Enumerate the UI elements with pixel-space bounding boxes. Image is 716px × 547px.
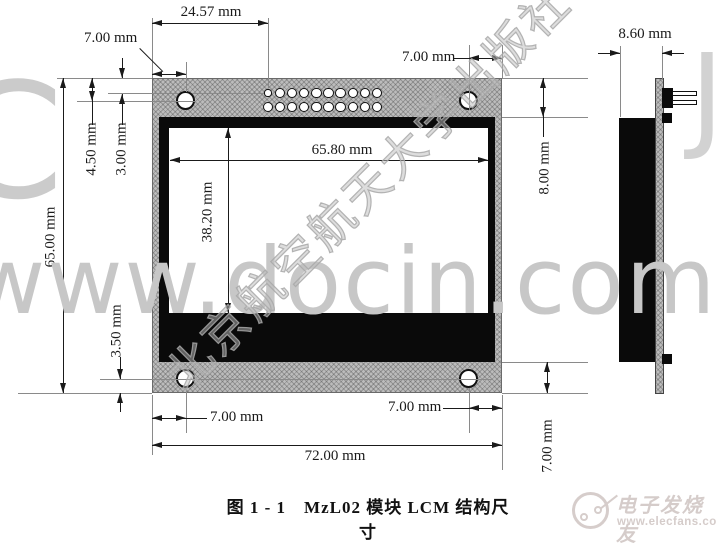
pin-hole: [360, 88, 370, 98]
extension-line: [502, 117, 588, 118]
elecfans-logo-pad: [580, 513, 588, 521]
dim-label-module-width: 72.00 mm: [285, 448, 385, 465]
arrowhead: [152, 71, 162, 77]
dim-label-hole-inset-bottom-right: 7.00 mm: [388, 399, 441, 416]
arrowhead: [225, 303, 231, 313]
extension-line: [502, 393, 588, 394]
dim-label-hole-to-bottom: 3.50 mm: [109, 304, 126, 357]
arrowhead: [225, 128, 231, 138]
arrowhead: [170, 157, 180, 163]
solder-tab-top: [662, 113, 672, 123]
pin-hole: [335, 102, 345, 112]
dim-label-top-margin: 8.00 mm: [537, 141, 554, 194]
pin-hole: [311, 88, 321, 98]
solder-tab-bottom: [662, 354, 672, 364]
extension-line: [502, 45, 503, 78]
figure-caption: 图 1 - 1 MzL02 模块 LCM 结构尺寸: [218, 493, 518, 543]
arrowhead: [60, 78, 66, 88]
dimension-line: [228, 128, 229, 313]
dim-label-edge-to-pins: 3.00 mm: [114, 122, 131, 175]
extension-line: [18, 393, 152, 394]
arrowhead: [152, 442, 162, 448]
arrowhead: [469, 55, 479, 61]
extension-line: [469, 388, 470, 433]
arrowhead: [544, 362, 550, 372]
extension-line: [186, 389, 187, 433]
arrowhead: [176, 415, 186, 421]
arrowhead: [117, 369, 123, 379]
extension-line: [57, 78, 152, 79]
pin-hole: [323, 102, 333, 112]
pin-hole: [360, 102, 370, 112]
dim-label-module-height: 65.00 mm: [43, 207, 60, 268]
dim-label-hole-inset-top-right: 7.00 mm: [402, 49, 455, 66]
extension-line: [77, 101, 196, 102]
dim-label-thickness: 8.60 mm: [608, 26, 682, 43]
extension-line: [268, 18, 269, 88]
pin-hole: [335, 88, 345, 98]
arrowhead: [540, 78, 546, 88]
arrowhead: [544, 383, 550, 393]
arrowhead: [540, 107, 546, 117]
pin-hole: [348, 88, 358, 98]
pin-hole: [348, 102, 358, 112]
elecfans-watermark-name: 电子发烧友: [616, 489, 716, 547]
dim-label-hole-inset-top-left: 7.00 mm: [84, 30, 137, 47]
pin-hole: [311, 102, 321, 112]
arrowhead: [610, 50, 620, 56]
extension-line: [620, 46, 621, 117]
arrowhead: [89, 78, 95, 88]
dim-label-display-width: 65.80 mm: [292, 142, 392, 159]
connector-pin: [672, 100, 697, 105]
arrowhead: [176, 71, 186, 77]
figure-canvas: 24.57 mm 7.00 mm 4.50 mm 3.00 mm 65.00 m…: [0, 0, 716, 547]
dim-label-hole-inset-bottom-left: 7.00 mm: [210, 409, 263, 426]
pin-hole: [264, 89, 271, 96]
pin-hole: [323, 88, 333, 98]
docin-watermark-fragment-right: J: [690, 40, 716, 155]
elecfans-watermark-url: www.elecfans.com: [617, 516, 716, 528]
dim-label-edge-to-hole: 4.50 mm: [84, 122, 101, 175]
arrowhead: [478, 157, 488, 163]
extension-line: [502, 395, 503, 470]
dimension-line: [170, 160, 488, 161]
lcd-body-side: [619, 118, 655, 362]
dim-label-bottom-margin: 7.00 mm: [540, 419, 557, 472]
extension-line: [100, 379, 493, 380]
arrowhead: [492, 55, 502, 61]
arrowhead: [89, 91, 95, 101]
docin-watermark-fragment-left: C: [0, 62, 64, 222]
arrowhead: [152, 415, 162, 421]
module-pcb-side: [655, 78, 664, 394]
arrowhead: [119, 94, 125, 104]
dim-label-pin-offset: 24.57 mm: [155, 4, 267, 21]
elecfans-logo-trace: [599, 495, 618, 510]
arrowhead: [117, 393, 123, 403]
extension-line: [186, 62, 187, 92]
arrowhead: [492, 442, 502, 448]
arrowhead: [492, 405, 502, 411]
arrowhead: [60, 383, 66, 393]
dimension-line: [152, 445, 502, 446]
dim-label-display-height: 38.20 mm: [200, 182, 217, 243]
arrowhead: [662, 50, 672, 56]
dimension-line: [152, 23, 268, 24]
connector-pin: [672, 91, 697, 96]
extension-line: [152, 18, 153, 78]
arrowhead: [119, 68, 125, 78]
dimension-line: [63, 78, 64, 393]
elecfans-logo-icon: [572, 492, 609, 529]
arrowhead: [469, 405, 479, 411]
